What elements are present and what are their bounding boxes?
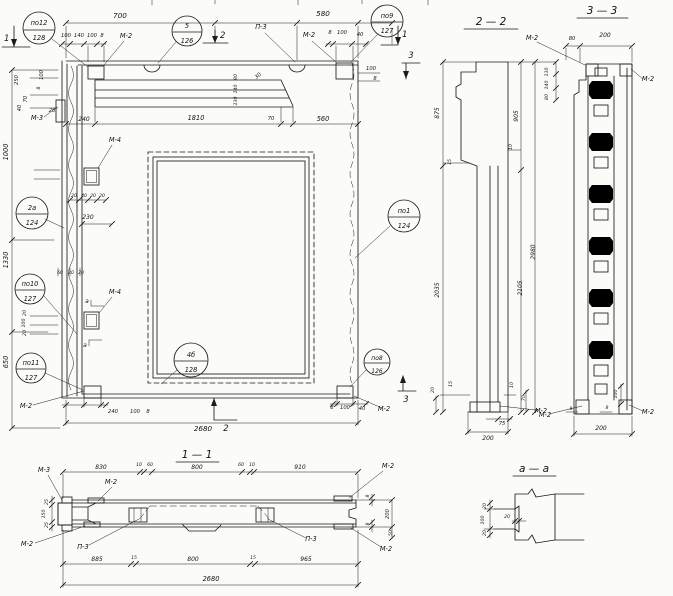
dim-25-b: 25 [44, 522, 50, 528]
dim-1000: 1000 [2, 144, 10, 161]
callout-po11-num: по11 [23, 359, 40, 367]
section-3-3-title: 3 — 3 [587, 5, 618, 17]
callout-po11-sheet: 127 [25, 374, 38, 382]
lintel-band [95, 80, 293, 107]
dim-100-s33: 100 [613, 390, 619, 399]
dim-100-l: 100 [39, 69, 45, 80]
mark-m2-s33-tl: М-2 [526, 34, 538, 42]
mark-m3-s11: М-3 [38, 466, 50, 474]
dim-10-s11a: 10 [136, 462, 142, 468]
dim-100-tr: 100 [337, 30, 348, 36]
section-2-2-dim-lines [436, 62, 556, 434]
mark-m2-top-mid: М-2 [303, 31, 315, 39]
dim-2680-main: 2680 [194, 424, 213, 433]
mark-m4-upper: М-4 [109, 136, 121, 144]
callout-po10-num: по10 [22, 280, 39, 288]
dim-580: 580 [316, 9, 330, 18]
dim-15-s22: 15 [447, 159, 453, 165]
section-2-2-title: 2 — 2 [476, 16, 507, 28]
mark-m2-bottom-left: М-2 [20, 402, 32, 410]
callout-2a: 2а 124 [16, 197, 48, 229]
mark-m4-lower: М-4 [109, 288, 121, 296]
s33-hatch-top-left [586, 64, 598, 76]
s11-left-stub-top [62, 497, 72, 503]
s11-p3-channels [129, 508, 274, 522]
callout-po1: по1 124 [388, 200, 420, 232]
mark-p3-s11-l: П-3 [77, 543, 89, 551]
dim-28: 28 [49, 108, 56, 114]
dim-200-s11: 200 [385, 508, 391, 519]
cut-label-2-top: 2 [220, 31, 225, 41]
s11-m3-embed [58, 503, 72, 525]
callout-po12-sheet: 128 [33, 34, 46, 42]
dim-1810: 1810 [188, 114, 205, 122]
dim-2105: 2105 [517, 280, 524, 295]
panel-elevation-view: 1 1 2 2 3 3 а а по12 128 5 126 по9 127 2… [2, 5, 420, 434]
section-1-1-view: 1 — 1 М-3 830 10 60 800 60 10 910 М-2 М-… [21, 449, 395, 588]
section-2-2-embed-plate [470, 402, 500, 412]
dim-200-s33-top: 200 [599, 32, 611, 39]
callout-po9-num: по9 [381, 12, 394, 20]
detail-a-a-title: а — а [519, 463, 549, 475]
section-2-2-profile [456, 62, 508, 412]
dim-905: 905 [513, 110, 520, 122]
dim-15-s22b: 15 [448, 381, 454, 387]
dim-650: 650 [2, 356, 10, 369]
dim-100-tl: 100 [61, 33, 72, 39]
mark-p3-s11-r: П-3 [305, 535, 317, 543]
dim-700: 700 [113, 11, 127, 20]
callout-po8: по8 126 [364, 349, 390, 375]
dim-140-s22: 140 [544, 81, 550, 90]
dim-20-r2c: 20 [99, 193, 105, 199]
dimension-lines [12, 23, 392, 428]
mark-p3-top: П-3 [255, 23, 267, 31]
callout-po12: по12 128 [23, 12, 55, 44]
dim-130-stack: 130 [233, 97, 239, 106]
dim-200-s22: 200 [482, 435, 494, 442]
dim-70-band: 70 [268, 116, 275, 122]
callout-po12-num: по12 [31, 19, 48, 27]
cut-label-1-left: 1 [4, 34, 9, 44]
dim-40-l: 40 [17, 104, 23, 111]
callout-4b-num: 4б [187, 351, 195, 359]
dim-2680-s11: 2680 [203, 575, 220, 583]
mark-m2-bottom-right: М-2 [378, 405, 390, 413]
dim-150: 150 [41, 510, 47, 519]
mark-m2-s11-tr: М-2 [382, 462, 394, 470]
callout-2a-sheet: 124 [26, 219, 39, 227]
section-1-1-title: 1 — 1 [182, 449, 213, 461]
callout-2a-num: 2а [28, 204, 36, 212]
dim-20-aa-inner: 20 [504, 514, 510, 520]
opening-hidden-contour [148, 152, 314, 383]
dim-8-l: 8 [36, 86, 42, 89]
dim-240-bl: 240 [108, 409, 119, 415]
opening-frame-inner [157, 161, 305, 374]
dim-240-band: 240 [78, 116, 90, 123]
dim-8-s11-t: 8 [365, 494, 371, 497]
dim-60-s11a: 60 [147, 462, 153, 468]
dim-25-a: 25 [44, 499, 50, 505]
dim-8-s33-r: 8 [606, 405, 609, 411]
embed-plate-top-left [88, 66, 104, 79]
s11-dim-lines [52, 472, 392, 587]
mark-m2-top-left: М-2 [120, 32, 132, 40]
section-cut-marks: 1 1 2 2 3 3 а а [2, 26, 420, 434]
callout-po1-num: по1 [398, 207, 411, 215]
dim-140-stack: 140 [233, 85, 239, 94]
s33-hatch-top-right [620, 64, 632, 76]
s11-m2-plate-br [334, 524, 353, 529]
dim-60-s11b: 60 [238, 462, 244, 468]
dim-100-bl: 100 [130, 409, 141, 415]
cut-label-a-upper: а [85, 298, 89, 305]
section-2-2-view: 2 — 2 875 2035 905 2105 2980 130 140 80 … [430, 16, 559, 442]
lifting-notches [144, 65, 305, 72]
mark-m2-s11-bl: М-2 [21, 540, 33, 548]
dim-230: 230 [82, 214, 94, 221]
mark-m2-s33-r: М-2 [642, 75, 654, 83]
dim-8-s33-l: 8 [570, 406, 573, 412]
callout-4b-sheet: 128 [185, 366, 198, 374]
embed-m4-upper-inner [87, 171, 97, 183]
s11-left-stub-bottom [62, 525, 72, 531]
dim-8-s11-b: 8 [365, 522, 371, 525]
callout-po9: по9 127 [371, 5, 403, 37]
s11-m2-plate-tl [88, 498, 104, 503]
callout-5: 5 126 [172, 16, 202, 46]
dim-830: 830 [95, 464, 107, 471]
dim-20-r2a: 20 [71, 193, 77, 199]
dim-8-tl: 8 [100, 33, 104, 39]
embed-plate-bottom-left [84, 386, 101, 398]
dim-20-r3b: 20 [78, 270, 84, 276]
dim-20-r2b: 20 [90, 193, 96, 199]
mark-m2-s33-bl: М-2 [539, 411, 551, 419]
dim-200-s33-bot: 200 [595, 425, 607, 432]
right-break-wavy-line [350, 64, 354, 384]
dim-75: 75 [499, 421, 506, 427]
dim-10-s11b: 10 [249, 462, 255, 468]
dim-10-s22: 10 [508, 144, 514, 150]
callout-po9-sheet: 127 [381, 27, 394, 35]
dim-8-tr: 8 [328, 30, 332, 36]
dim-800-bot: 800 [187, 556, 199, 563]
dim-2035: 2035 [434, 282, 441, 297]
dim-20-r3a: 20 [68, 270, 74, 276]
dim-560: 560 [317, 115, 330, 123]
dim-885: 885 [91, 556, 103, 563]
dim-100-s: 100 [21, 319, 27, 328]
mark-m3-left: М-3 [31, 114, 43, 122]
dim-80-s33: 80 [569, 36, 576, 42]
callout-po10: по10 127 [15, 274, 45, 304]
dim-15-s11a: 15 [131, 555, 137, 561]
dim-965: 965 [300, 556, 312, 563]
dim-20-s22b: 20 [430, 387, 436, 393]
dim-100-aa: 100 [480, 516, 486, 525]
dim-140-tl: 140 [74, 33, 85, 39]
dim-20-aa-b: 20 [482, 530, 488, 536]
cut-label-a-lower: а [83, 342, 87, 349]
dim-100-tl2: 100 [87, 33, 98, 39]
dim-910: 910 [294, 464, 306, 471]
left-joint-wavy-line [69, 66, 74, 390]
s11-leaders [35, 471, 383, 547]
s11-ticks [49, 469, 394, 587]
dim-50-s11: 50 [388, 530, 394, 536]
mark-m2-s11-tl: М-2 [105, 478, 117, 486]
dim-10-s22b: 10 [509, 382, 515, 388]
dim-20-aa-t: 20 [482, 503, 488, 509]
detail-a-a-view: а — а 20 100 20 20 [480, 463, 584, 543]
dim-1330: 1330 [2, 252, 10, 269]
dim-40-br: 40 [359, 406, 366, 412]
dim-100-br: 100 [340, 405, 351, 411]
dim-800-top: 800 [191, 464, 203, 471]
s11-opening-hidden [138, 506, 271, 521]
section-2-2-ticks [433, 59, 558, 434]
s33-hollow-cores [589, 68, 613, 394]
dim-60-r3: 60 [57, 270, 63, 276]
callout-po10-sheet: 127 [24, 295, 37, 303]
dim-40-tr: 40 [357, 32, 364, 38]
s11-m2-plate-bl [84, 522, 100, 527]
dim-2980: 2980 [530, 244, 537, 259]
embed-m3-edge [56, 100, 65, 122]
dim-20-s1: 20 [22, 310, 28, 316]
dim-80-stack: 80 [233, 74, 239, 80]
cut-label-1-right: 1 [402, 30, 407, 40]
cut-label-3-top: 3 [408, 51, 413, 61]
callout-po8-sheet: 126 [371, 368, 383, 375]
opening-frame-outer [153, 157, 309, 378]
callout-po11: по11 127 [16, 353, 46, 383]
s11-strip [58, 500, 356, 531]
drawing-sheet: 1 1 2 2 3 3 а а по12 128 5 126 по9 127 2… [0, 0, 673, 596]
cut-label-2-bottom: 2 [223, 424, 228, 434]
dim-70-s22: 70 [521, 395, 527, 401]
panel-engineering-drawing: 1 1 2 2 3 3 а а по12 128 5 126 по9 127 2… [0, 0, 673, 596]
sheet-crop-marks [152, 0, 428, 5]
mark-m2-s33-br: М-2 [642, 408, 654, 416]
dim-80-s22: 80 [544, 94, 550, 100]
embed-m4-lower-inner [87, 315, 97, 327]
embed-plate-bottom-right [337, 386, 353, 398]
dim-8-br: 8 [330, 405, 334, 411]
dim-8-bl: 8 [146, 409, 150, 415]
dim-250: 250 [14, 74, 20, 85]
cut-label-3-bottom: 3 [403, 395, 408, 405]
callout-5-num: 5 [185, 22, 189, 30]
dim-130-s22: 130 [544, 68, 550, 77]
dim-20-s2: 20 [22, 330, 28, 336]
dim-30-taper: 30 [254, 71, 263, 80]
dim-100-right: 100 [366, 66, 377, 72]
mark-m2-s11-br: М-2 [380, 545, 392, 553]
callout-po8-num: по8 [371, 355, 383, 362]
dim-40-r2: 40 [81, 193, 87, 199]
callout-5-sheet: 126 [181, 37, 194, 45]
callout-po1-sheet: 124 [398, 222, 411, 230]
callout-4b: 4б 128 [174, 343, 208, 377]
dim-70-l: 70 [23, 95, 29, 102]
dim-15-s11b: 15 [250, 555, 256, 561]
dim-875: 875 [434, 107, 441, 119]
section-2-2-m2-leader [500, 406, 536, 410]
